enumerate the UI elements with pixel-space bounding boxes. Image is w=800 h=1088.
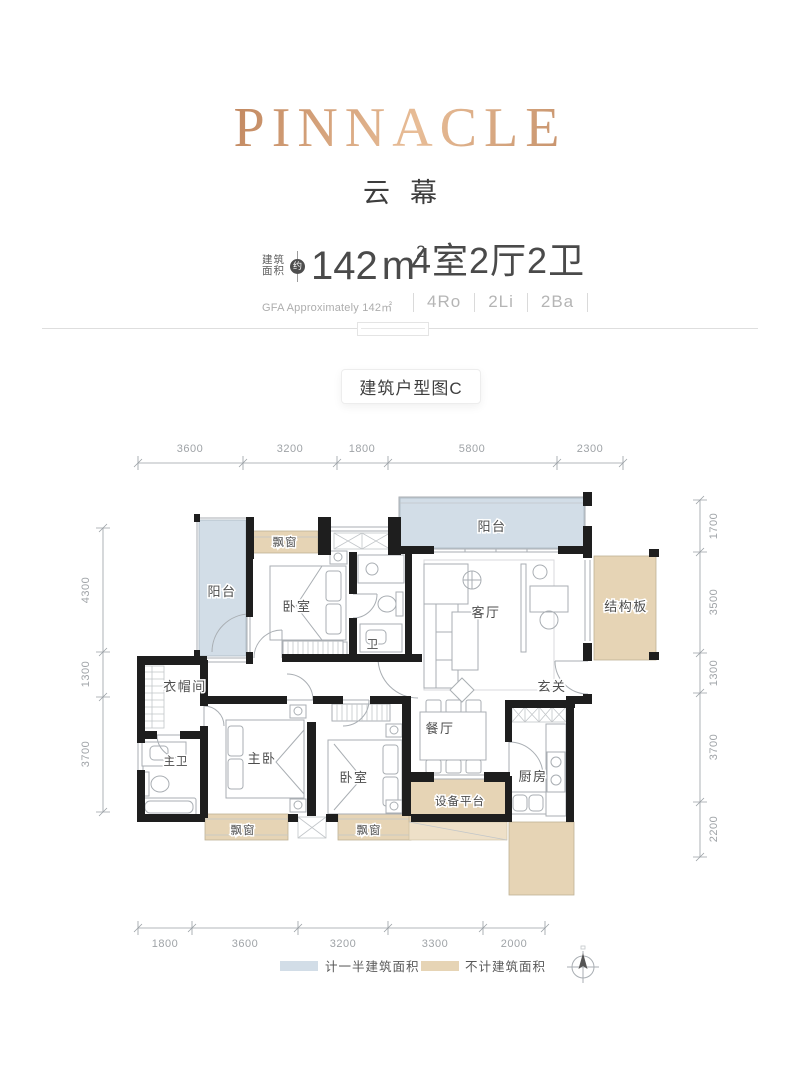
layout-spec: 4室2厅2卫 4Ro 2Li 2Ba [411,243,601,312]
divider-ornament [357,322,429,336]
dim-right-2: 1300 [708,660,720,686]
room-label-bedroom2: 卧室 [339,770,368,785]
layout-cn: 4室2厅2卫 [411,243,601,279]
dim-right-1: 3500 [708,589,720,615]
plan-tab-button[interactable]: 建筑户型图C [341,369,481,404]
legend-label-excluded-area: 不计建筑面积 [465,959,546,974]
project-name: 云幕 [0,171,800,210]
dim-left-0: 4300 [80,577,92,603]
room-label-bay-bottom-mid: 飘窗 [357,823,382,837]
gfa-note: GFA Approximately 142㎡ [262,299,426,315]
page: PINNACLE 云幕 建筑 面积 约 142 m 2 GFA Approxim… [0,0,800,1088]
room-label-kitchen: 厨房 [518,769,547,784]
dim-right-0: 1700 [708,513,720,539]
room-label-structure-panel: 结构板 [604,599,648,614]
room-label-dining: 餐厅 [425,721,454,736]
layout-en-living: 2Li [488,292,514,312]
dim-bottom-3: 3300 [422,938,448,950]
approx-badge: 约 [290,259,305,274]
dim-left-1: 1300 [80,661,92,687]
kitchen-extension-area [509,822,574,895]
dim-right-4: 2200 [708,816,720,842]
dim-top-3: 5800 [459,443,485,455]
compass-icon [567,946,599,983]
brand-title: PINNACLE [0,96,800,160]
area-value: 142 m 2 [311,246,426,286]
room-label-bay-top: 飘窗 [273,535,298,549]
layout-en: 4Ro 2Li 2Ba [411,292,601,312]
separator [527,293,528,312]
legend-swatch-half-area [280,961,318,971]
dim-top-1: 3200 [277,443,303,455]
dim-top-4: 2300 [577,443,603,455]
room-label-top-balcony: 阳台 [477,519,506,534]
dim-bottom-0: 1800 [152,938,178,950]
layout-en-baths: 2Ba [541,292,574,312]
room-label-equipment-platform: 设备平台 [435,794,485,808]
dim-top-0: 3600 [177,443,203,455]
layout-en-rooms: 4Ro [427,292,461,312]
room-label-master-bedroom: 主卧 [247,751,276,766]
legend-label-half-area: 计一半建筑面积 [325,959,420,974]
room-label-cloakroom: 衣帽间 [163,679,207,694]
legend: 计一半建筑面积 不计建筑面积 [280,959,546,974]
room-label-foyer: 玄关 [537,679,566,694]
legend-swatch-excluded-area [421,961,459,971]
area-label: 建筑 面积 [262,255,285,278]
separator [474,293,475,312]
room-label-living: 客厅 [471,605,500,620]
dim-right-3: 3700 [708,734,720,760]
room-label-master-bath: 主卫 [164,755,189,768]
room-label-bay-bottom-left: 飘窗 [231,823,256,837]
dim-bottom-1: 3600 [232,938,258,950]
floorplan: 3600 3200 1800 5800 2300 1800 3600 3200 … [0,420,800,1010]
room-label-left-balcony: 阳台 [207,584,236,599]
area-spec: 建筑 面积 约 142 m 2 GFA Approximately 142㎡ [262,246,426,315]
area-label-line2: 面积 [262,266,285,278]
dim-top-2: 1800 [349,443,375,455]
dim-bottom-2: 3200 [330,938,356,950]
room-label-bedroom1: 卧室 [282,599,311,614]
separator [413,293,414,312]
dim-left-2: 3700 [80,741,92,767]
dim-bottom-4: 2000 [501,938,527,950]
area-number: 142 [311,246,378,286]
separator [587,293,588,312]
room-label-bath2: 卫 [367,639,380,651]
